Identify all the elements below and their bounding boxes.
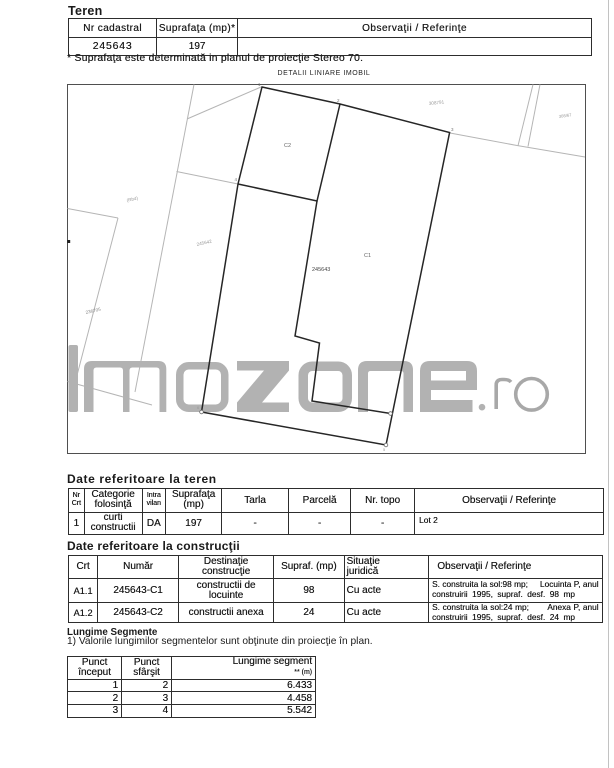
svg-text:2: 2 [337, 98, 340, 103]
svg-text:245643: 245643 [312, 267, 330, 273]
svg-text:(Rb4): (Rb4) [126, 195, 139, 203]
svg-text:4: 4 [235, 177, 238, 182]
svg-text:3: 3 [451, 127, 454, 132]
svg-text:C2: C2 [284, 143, 291, 149]
svg-text:5: 5 [383, 447, 386, 452]
svg-text:C1: C1 [364, 253, 371, 259]
svg-text:245642: 245642 [196, 239, 212, 247]
svg-text:308/67: 308/67 [558, 112, 572, 119]
svg-text:308791: 308791 [429, 99, 445, 106]
